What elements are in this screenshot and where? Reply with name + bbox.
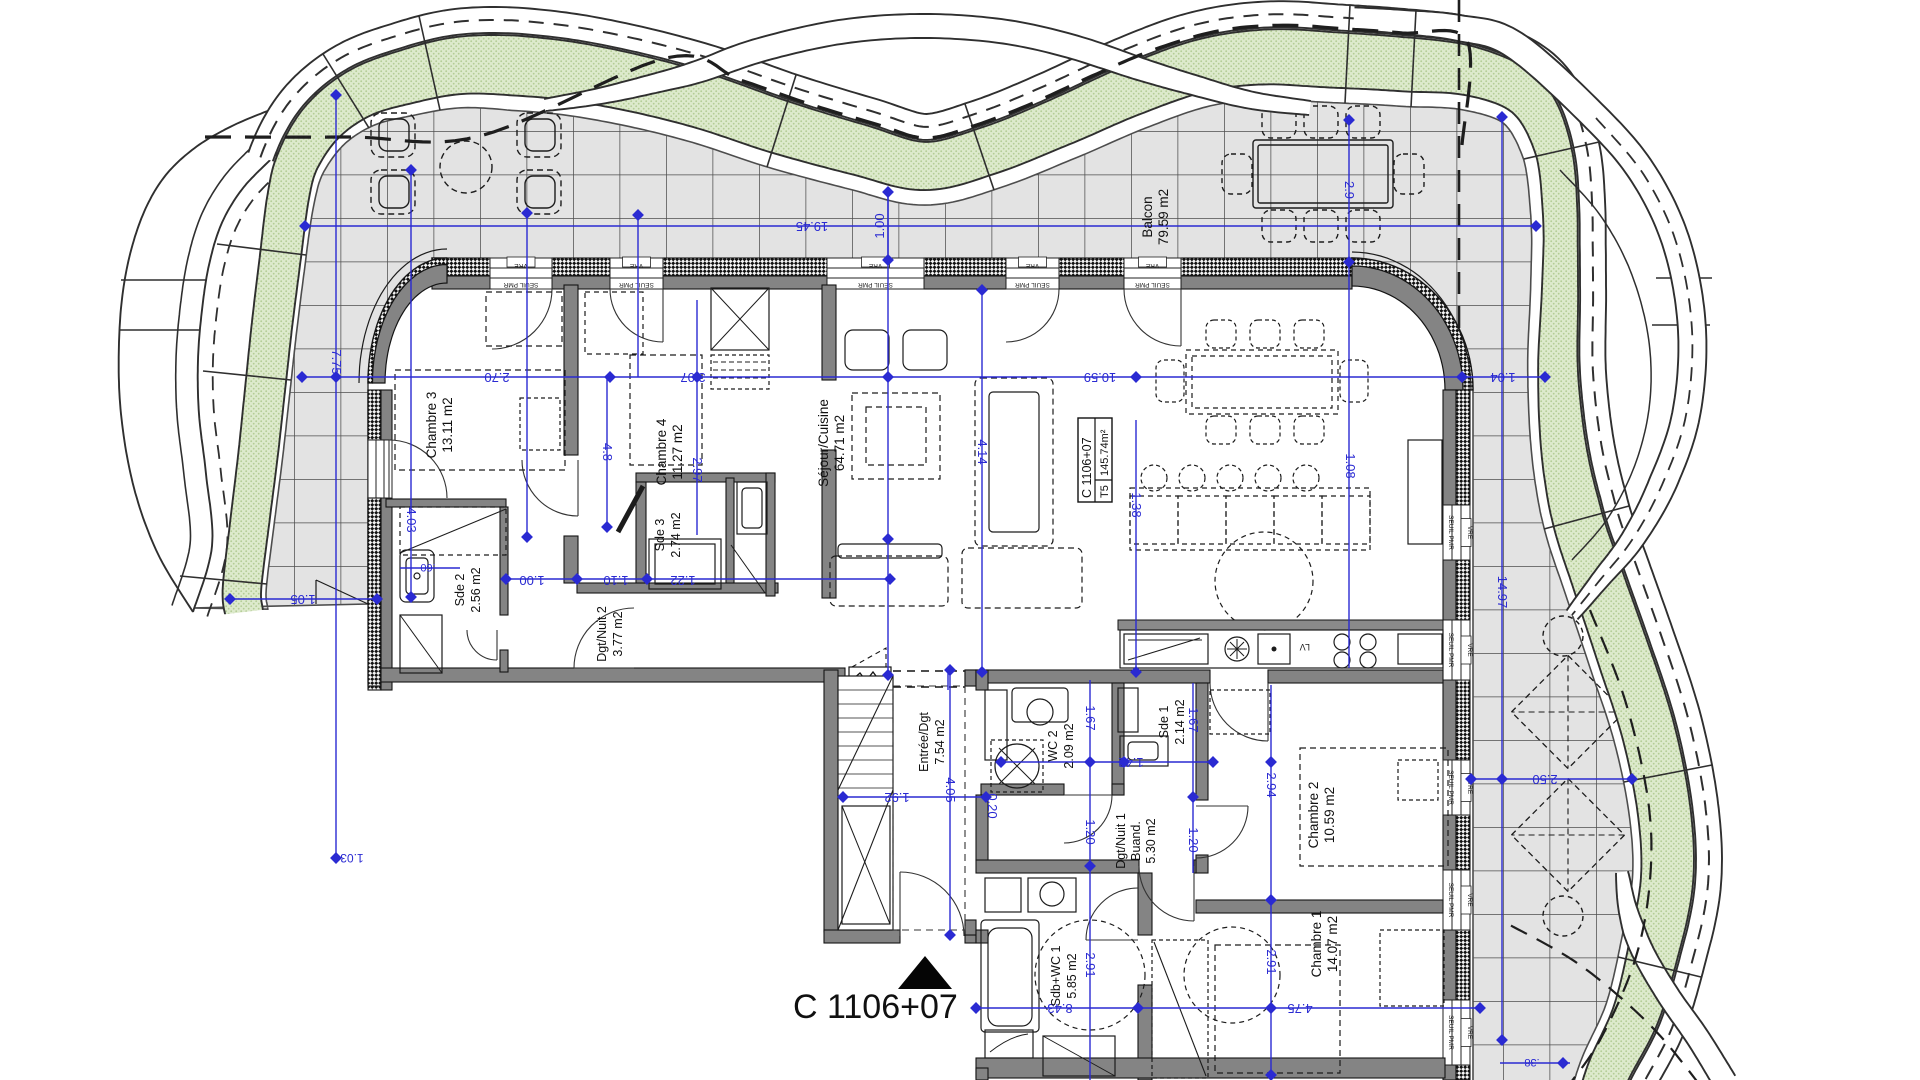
svg-text:VRE: VRE: [1145, 262, 1159, 269]
svg-text:VRE: VRE: [514, 262, 528, 269]
svg-text:1.38: 1.38: [1129, 492, 1144, 517]
svg-text:Chambre 210.59 m2: Chambre 210.59 m2: [1306, 782, 1337, 849]
svg-text:2.94: 2.94: [1264, 772, 1279, 797]
svg-text:T5: T5: [1099, 485, 1111, 498]
svg-text:SEUIL PMR: SEUIL PMR: [1015, 281, 1050, 288]
svg-text:SEUIL PMR: SEUIL PMR: [1447, 633, 1454, 668]
svg-text:1.04: 1.04: [1490, 370, 1515, 385]
svg-text:10.59: 10.59: [1084, 370, 1117, 385]
svg-text:4.8: 4.8: [600, 443, 615, 461]
svg-text:4.05: 4.05: [943, 777, 958, 802]
svg-text:2.50: 2.50: [1532, 772, 1557, 787]
svg-text:1.67: 1.67: [1083, 705, 1098, 730]
svg-text:SEUIL PMR: SEUIL PMR: [1447, 1015, 1454, 1050]
svg-text:2.97: 2.97: [690, 457, 705, 482]
svg-text:Chambre 411.27 m2: Chambre 411.27 m2: [654, 418, 685, 485]
svg-text:1.22: 1.22: [670, 573, 695, 588]
svg-text:1.05: 1.05: [290, 592, 315, 607]
svg-text:1.00: 1.00: [872, 213, 887, 238]
svg-text:VRE: VRE: [1025, 262, 1039, 269]
svg-text:Chambre 313.11 m2: Chambre 313.11 m2: [424, 392, 455, 459]
svg-text:1.20: 1.20: [1186, 827, 1201, 852]
svg-text:.38: .38: [1524, 1056, 1539, 1068]
svg-text:1.42: 1.42: [1118, 755, 1143, 770]
svg-text:SEUIL PMR: SEUIL PMR: [619, 281, 654, 288]
svg-text:VRE: VRE: [1466, 643, 1473, 657]
svg-text:4.03: 4.03: [404, 507, 419, 532]
svg-text:19.45: 19.45: [796, 219, 829, 234]
svg-text:SEUIL PMR: SEUIL PMR: [1447, 883, 1454, 918]
svg-text:SEUIL PMR: SEUIL PMR: [1135, 281, 1170, 288]
svg-text:2.91: 2.91: [1264, 949, 1279, 974]
svg-text:C 1106+07: C 1106+07: [793, 988, 958, 1026]
svg-text:VRE: VRE: [1466, 1026, 1473, 1040]
svg-text:2.70: 2.70: [484, 370, 509, 385]
svg-text:VRE: VRE: [629, 262, 643, 269]
svg-text:SEUIL PMR: SEUIL PMR: [1447, 515, 1454, 550]
svg-text:LV: LV: [1300, 642, 1310, 652]
svg-text:2.91: 2.91: [1083, 952, 1098, 977]
svg-text:2.9: 2.9: [1342, 181, 1357, 199]
svg-text:1.92: 1.92: [884, 790, 909, 805]
svg-text:Chambre 114.07 m2: Chambre 114.07 m2: [1309, 911, 1340, 978]
svg-text:0.20: 0.20: [985, 793, 1000, 818]
svg-text:VRE: VRE: [1466, 526, 1473, 540]
svg-text:4.14: 4.14: [975, 439, 990, 464]
svg-text:4.75: 4.75: [1287, 1001, 1312, 1016]
svg-text:1.03: 1.03: [340, 851, 364, 865]
svg-text:1.10: 1.10: [603, 573, 628, 588]
svg-text:Balcon79.59 m2: Balcon79.59 m2: [1140, 189, 1171, 245]
svg-text:.60: .60: [420, 561, 435, 573]
svg-text:VRE: VRE: [868, 262, 882, 269]
svg-text:1.20: 1.20: [1083, 819, 1098, 844]
svg-text:Dgt/Nuit 1Buand.5.30 m2: Dgt/Nuit 1Buand.5.30 m2: [1114, 813, 1158, 869]
svg-text:C 1106+07: C 1106+07: [1080, 437, 1094, 498]
svg-text:145.74m²: 145.74m²: [1099, 429, 1111, 476]
svg-text:7.75: 7.75: [329, 349, 344, 374]
svg-text:3.07: 3.07: [680, 370, 705, 385]
svg-text:VRE: VRE: [1466, 893, 1473, 907]
svg-text:14.97: 14.97: [1495, 576, 1510, 609]
svg-text:1.08: 1.08: [1343, 453, 1358, 478]
svg-text:SEUIL PMR: SEUIL PMR: [503, 281, 538, 288]
svg-text:1.00: 1.00: [519, 573, 544, 588]
svg-text:1.67: 1.67: [1186, 707, 1201, 732]
